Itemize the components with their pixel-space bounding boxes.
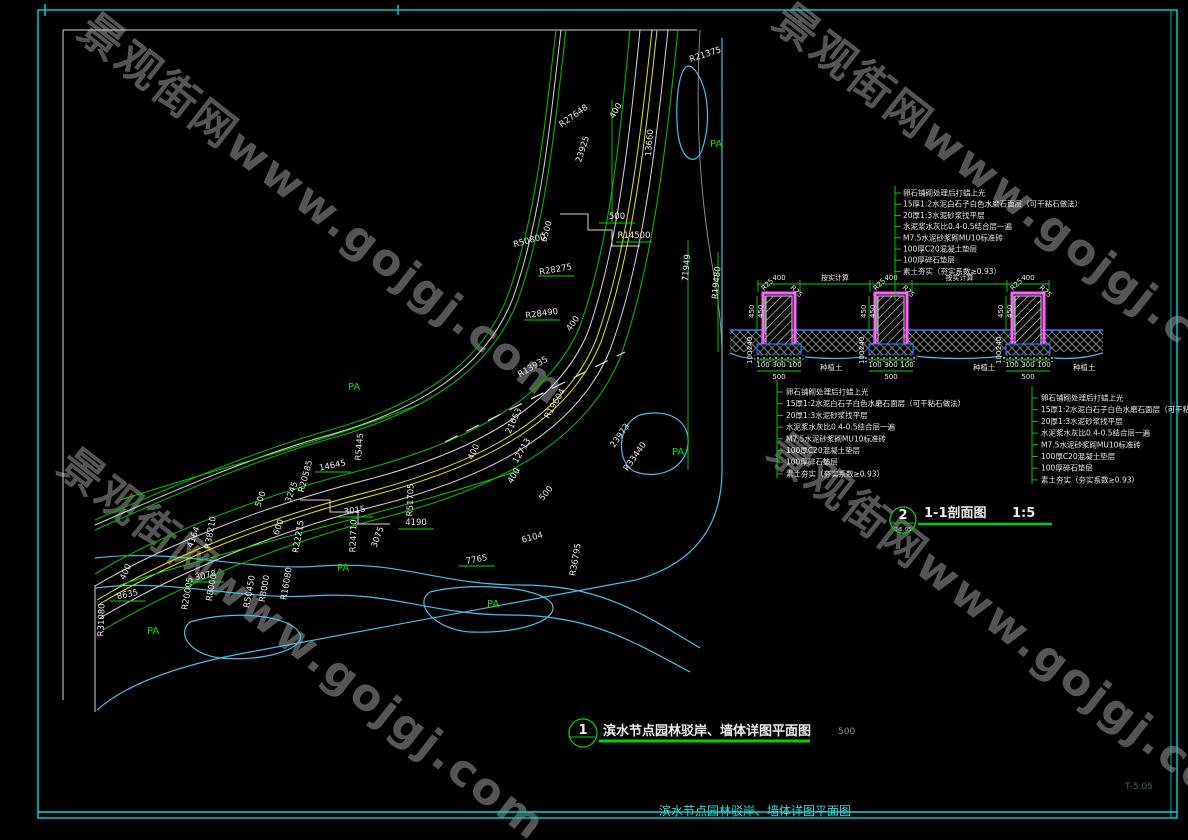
dim-label: 400 (565, 314, 583, 333)
watermark-layer: 景观街网www.gojgj.com景观街网www.gojgj.com景观街网ww… (48, 0, 1188, 840)
dim-label: R5445 (354, 433, 366, 461)
construction-note: 100厚C20混凝土垫层 (1041, 451, 1116, 461)
dim-label: 21653 (504, 407, 524, 436)
dim-label: R31080 (96, 603, 107, 636)
dim-foot: 100 (1005, 361, 1018, 369)
watermark-text: 景观街网www.gojgj.com (68, 3, 576, 416)
dim-label: 3015 (343, 505, 366, 518)
dim-label: R28275 (539, 262, 573, 278)
dim-foot: 100 (900, 361, 913, 369)
construction-note: 100厚碎石垫层 (786, 457, 838, 467)
dim-pier-width: 400 (884, 274, 897, 282)
dim-label: R36795 (568, 543, 584, 577)
footing (757, 344, 801, 355)
construction-note: 20厚1:3水泥砂浆找平层 (786, 410, 868, 420)
detail-number: 2 (898, 508, 907, 523)
pa-tag: PA (487, 599, 499, 610)
dim-label: 6104 (521, 530, 544, 545)
plan-title-text: 滨水节点园林驳岸、墙体详图平面图 (603, 723, 811, 739)
construction-note: 卵石铺砌处理后打蜡上光 (786, 387, 869, 397)
dim-label: R16080 (279, 567, 295, 601)
dim-foot: 300 (884, 361, 897, 369)
soil-label: 种植土 (1073, 362, 1096, 372)
pa-tag: PA (672, 447, 684, 458)
pier-hatch (766, 296, 792, 344)
footing (869, 344, 913, 355)
construction-note: 100厚C20混凝土垫层 (903, 244, 978, 254)
pa-tag: PA (147, 626, 159, 637)
dim-label: R24710 (348, 519, 359, 552)
pond-shape (677, 66, 708, 159)
soil-label: 种植土 (973, 362, 996, 372)
construction-note: M7.5水泥砂浆砌MU10标准砖 (903, 232, 1003, 242)
dim-label: 23925 (574, 135, 592, 164)
pier-hatch (878, 296, 904, 344)
dim-100: 100 (858, 351, 866, 364)
dim-label: R28490 (525, 307, 559, 321)
dim-label: 400 (506, 466, 523, 485)
construction-note: 20厚1:3水泥砂浆找平层 (1041, 416, 1123, 426)
dim-240: 240 (995, 337, 1003, 350)
dim-100: 100 (995, 351, 1003, 364)
construction-note: 水泥浆水灰比0.4-0.5结合层一遍 (786, 422, 896, 432)
drawing-caption: 滨水节点园林驳岸、墙体详图平面图 (659, 803, 851, 818)
dim-label: 6500 (539, 220, 554, 243)
dim-450: 450 (860, 305, 868, 318)
dim-label: 500 (609, 212, 625, 222)
construction-note: 水泥浆水灰比0.4-0.5结合层一遍 (1041, 428, 1151, 438)
construction-note: 素土夯实（夯实系数≥0.93） (1041, 474, 1139, 484)
dim-foot: 300 (1021, 361, 1034, 369)
construction-note: M7.5水泥砂浆砌MU10标准砖 (1041, 439, 1141, 449)
dim-label: 71949 (681, 254, 693, 282)
dim-label: 8635 (116, 588, 139, 602)
dim-foot-total: 500 (772, 373, 785, 381)
section-detail: 种植土种植土种植土400R25R254504502401001003001005… (730, 186, 1188, 484)
construction-note: 20厚1:3水泥砂浆找平层 (903, 210, 985, 220)
dim-label: R51705 (405, 483, 416, 516)
dim-foot-total: 500 (1021, 373, 1034, 381)
dim-label: 500 (537, 484, 555, 503)
dim-450: 450 (757, 305, 765, 318)
dim-spacing: 按实计算 (821, 273, 849, 282)
dim-450: 450 (997, 305, 1005, 318)
construction-note: 素土夯实（夯实系数≥0.93） (903, 266, 1001, 276)
cad-canvas: 景观街网www.gojgj.com景观街网www.gojgj.com景观街网ww… (0, 0, 1188, 840)
dim-label: 500 (254, 490, 269, 509)
plan-title: 1 滨水节点园林驳岸、墙体详图平面图 500 (569, 719, 855, 747)
dim-pier-width: 400 (1021, 274, 1034, 282)
plan-number: 1 (578, 723, 587, 738)
watermark-text: 景观街网www.gojgj.com (758, 423, 1188, 836)
sheet-number: T-5.05 (1124, 782, 1153, 792)
construction-note: 水泥浆水灰比0.4-0.5结合层一遍 (903, 221, 1013, 231)
construction-note: M7.5水泥砂浆砌MU10标准砖 (786, 433, 886, 443)
dim-100: 100 (746, 351, 754, 364)
plan-dimension-lines (120, 100, 718, 585)
dim-label: R27648 (557, 103, 590, 130)
dim-label: 14645 (318, 458, 347, 473)
dim-label: 3075 (370, 525, 387, 549)
soil-label: 种植土 (820, 362, 843, 372)
detail-sheet-ref: T-5.05 (893, 527, 912, 533)
dim-240: 240 (858, 337, 866, 350)
dim-450: 450 (869, 305, 877, 318)
construction-note: 卵石铺砌处理后打蜡上光 (1041, 393, 1124, 403)
section-title-scale: 1:5 (1012, 506, 1035, 521)
dim-label: R22215 (291, 520, 307, 554)
pa-tag: PA (337, 563, 349, 574)
dim-label: 4190 (405, 518, 427, 528)
construction-note: 15厚1:2水泥白石子白色水磨石面层（可干粘石做法） (786, 398, 965, 408)
dim-foot: 100 (788, 361, 801, 369)
dim-label: R21375 (688, 45, 722, 65)
dim-label: 12713 (511, 437, 533, 465)
pa-tag: PA (710, 139, 722, 150)
dim-foot: 300 (772, 361, 785, 369)
dim-label: R14500 (618, 231, 651, 241)
construction-note: 100厚碎石垫层 (903, 255, 955, 265)
dim-foot: 100 (756, 361, 769, 369)
dim-450: 450 (1006, 305, 1014, 318)
dim-foot: 100 (868, 361, 881, 369)
section-title-text: 1-1剖面图 (924, 505, 987, 521)
dim-450: 450 (748, 305, 756, 318)
dim-label: 7765 (465, 553, 488, 567)
construction-note: 15厚1:2水泥白石子白色水磨石面层（可干粘石做法） (903, 199, 1082, 209)
dim-label: R33440 (622, 440, 649, 473)
construction-note: 100厚碎石垫层 (1041, 463, 1093, 473)
dim-label: 23973 (609, 422, 633, 450)
construction-note: 15厚1:2水泥白石子白色水磨石面层（可干粘石做法） (1041, 404, 1188, 414)
cad-viewport: 景观街网www.gojgj.com景观街网www.gojgj.com景观街网ww… (0, 0, 1188, 840)
dim-pier-width: 400 (772, 274, 785, 282)
pa-tag: PA (348, 382, 360, 393)
dim-foot-total: 500 (884, 373, 897, 381)
dim-label: R20585 (297, 459, 315, 493)
construction-note: 卵石铺砌处理后打蜡上光 (903, 188, 986, 198)
pier-hatch (1015, 296, 1041, 344)
plan-title-scale: 500 (838, 727, 855, 737)
construction-note: 100厚C20混凝土垫层 (786, 445, 861, 455)
dim-240: 240 (746, 337, 754, 350)
dim-foot: 100 (1037, 361, 1050, 369)
construction-note: 素土夯实（夯实系数≥0.93） (786, 468, 884, 478)
footing (1006, 344, 1050, 355)
plan-boundary (63, 30, 722, 712)
